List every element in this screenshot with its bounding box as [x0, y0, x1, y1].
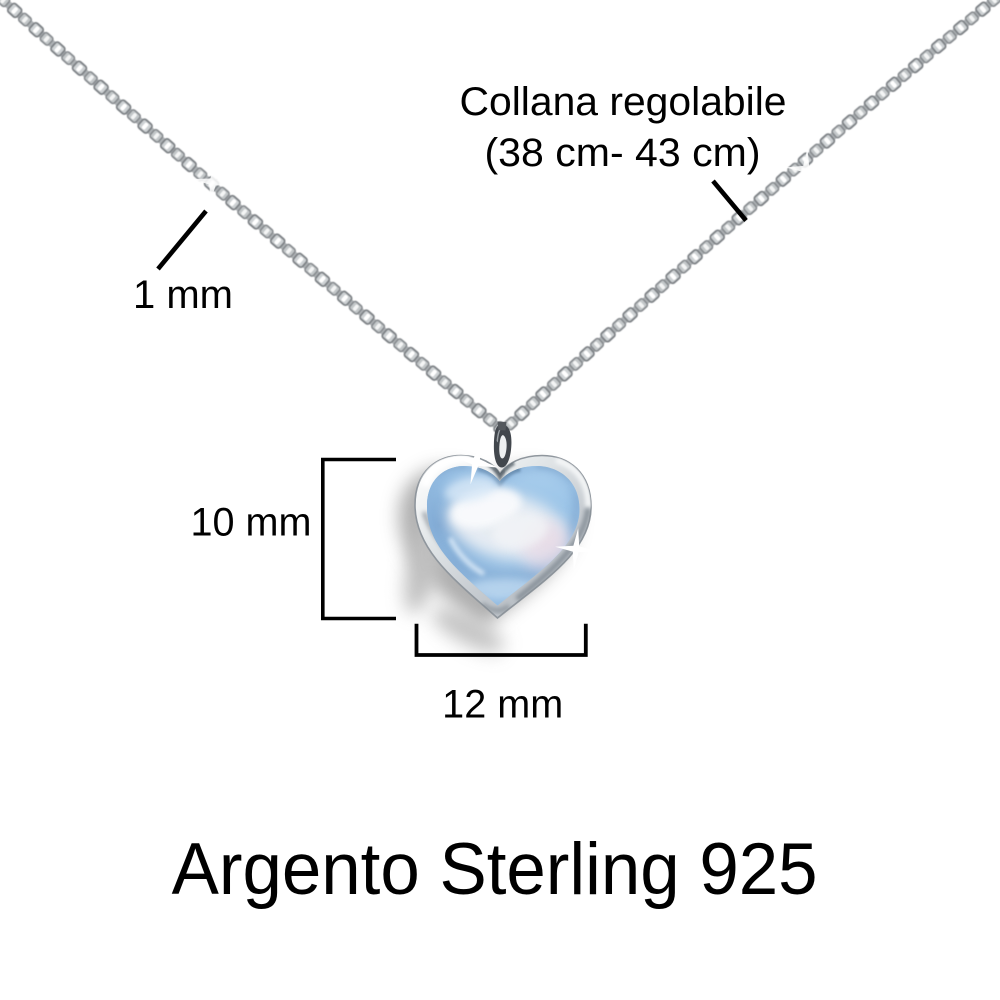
svg-text:Argento Sterling 925: Argento Sterling 925 — [172, 829, 818, 910]
svg-text:Collana regolabile: Collana regolabile — [460, 80, 787, 124]
svg-text:10 mm: 10 mm — [191, 501, 312, 545]
svg-text:12 mm: 12 mm — [442, 683, 563, 727]
svg-text:1 mm: 1 mm — [133, 273, 233, 317]
svg-text:(38 cm- 43 cm): (38 cm- 43 cm) — [485, 131, 761, 175]
